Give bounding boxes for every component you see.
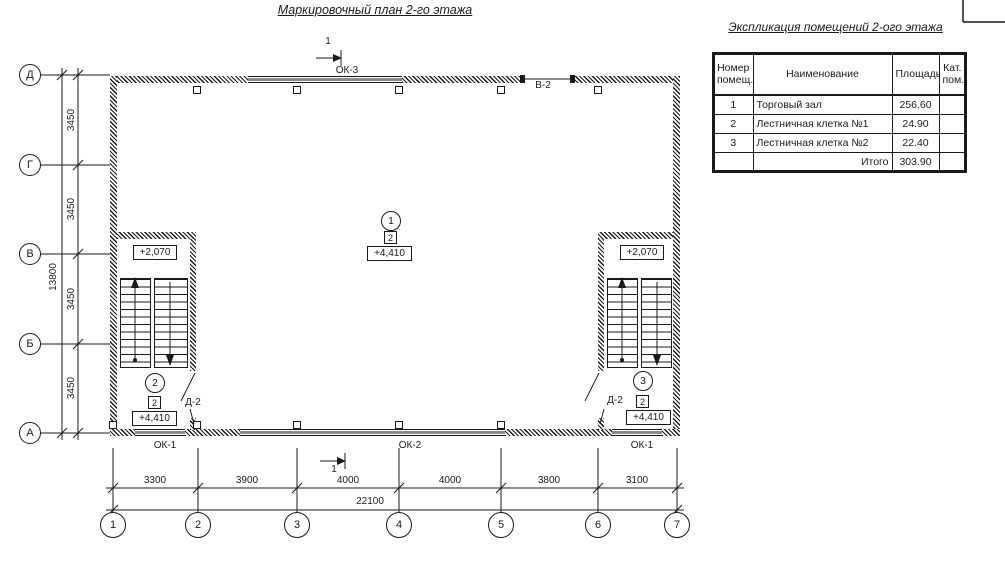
category-marker: 2 bbox=[636, 395, 649, 408]
category-marker: 2 bbox=[384, 231, 397, 244]
cell-name: Лестничная клетка №1 bbox=[753, 115, 892, 134]
cell-area: 256.60 bbox=[892, 95, 939, 115]
axis-bubble-left: В bbox=[19, 243, 41, 265]
header-category: Кат. пом. bbox=[939, 53, 966, 95]
dim-value: 3450 bbox=[66, 189, 78, 229]
plan-title: Маркировочный план 2-го этажа bbox=[225, 3, 525, 17]
axis-bubble-bottom: 6 bbox=[585, 512, 611, 538]
dim-value: 3300 bbox=[130, 475, 180, 486]
floor-plan-drawing: Маркировочный план 2-го этажа Экспликаци… bbox=[0, 0, 1005, 582]
bottom-axis-lines bbox=[113, 448, 677, 512]
section-number-bottom: 1 bbox=[328, 464, 340, 475]
dim-total-value: 22100 bbox=[345, 496, 395, 507]
cell-area: 22.40 bbox=[892, 134, 939, 153]
category-marker: 2 bbox=[148, 396, 161, 409]
axis-bubble-left: Г bbox=[19, 154, 41, 176]
axis-bubble-bottom: 7 bbox=[664, 512, 690, 538]
label-ok3: ОК-3 bbox=[320, 65, 374, 76]
dim-value: 4000 bbox=[425, 475, 475, 486]
elevation-marker: +4,410 bbox=[132, 411, 177, 426]
dim-value: 3450 bbox=[66, 100, 78, 140]
table-row: 2 Лестничная клетка №1 24.90 bbox=[713, 115, 966, 134]
elevation-marker: +4,410 bbox=[367, 246, 412, 261]
sheet-frame-corner bbox=[963, 0, 1005, 22]
bottom-dimension-lines bbox=[106, 483, 684, 515]
cell-category bbox=[939, 95, 966, 115]
label-ok2: ОК-2 bbox=[385, 440, 435, 451]
table-header-row: Номер помещ. Наименование Площадь Кат. п… bbox=[713, 53, 966, 95]
axis-bubble-left: Д bbox=[19, 64, 41, 86]
cell-total-value: 303.90 bbox=[892, 153, 939, 173]
label-ok1-left: ОК-1 bbox=[140, 440, 190, 451]
section-number-top: 1 bbox=[322, 36, 334, 47]
header-name: Наименование bbox=[753, 53, 892, 95]
axis-bubble-left: А bbox=[19, 422, 41, 444]
room-number-marker: 2 bbox=[145, 373, 165, 393]
cell-room-number: 1 bbox=[713, 95, 753, 115]
label-ok1-right: ОК-1 bbox=[617, 440, 667, 451]
label-v2: В-2 bbox=[528, 80, 558, 91]
cell-empty bbox=[939, 153, 966, 173]
cell-area: 24.90 bbox=[892, 115, 939, 134]
stair-arrows bbox=[135, 282, 657, 361]
room-number-marker: 3 bbox=[633, 371, 653, 391]
cell-category bbox=[939, 134, 966, 153]
cell-empty bbox=[713, 153, 753, 173]
table-row: 1 Торговый зал 256.60 bbox=[713, 95, 966, 115]
label-d2-left: Д-2 bbox=[180, 397, 206, 408]
axis-bubble-bottom: 1 bbox=[100, 512, 126, 538]
dim-value: 3100 bbox=[612, 475, 662, 486]
elevation-marker: +4,410 bbox=[626, 410, 671, 425]
dim-value: 3450 bbox=[66, 368, 78, 408]
cell-name: Лестничная клетка №2 bbox=[753, 134, 892, 153]
axis-bubble-left: Б bbox=[19, 333, 41, 355]
dim-value: 4000 bbox=[323, 475, 373, 486]
header-area: Площадь bbox=[892, 53, 939, 95]
table-title: Экспликация помещений 2-ого этажа bbox=[703, 20, 968, 34]
cell-room-number: 3 bbox=[713, 134, 753, 153]
header-room-number: Номер помещ. bbox=[713, 53, 753, 95]
cell-total-label: Итого bbox=[753, 153, 892, 173]
dim-value: 3450 bbox=[66, 279, 78, 319]
cell-category bbox=[939, 115, 966, 134]
cell-room-number: 2 bbox=[713, 115, 753, 134]
axis-bubble-bottom: 2 bbox=[185, 512, 211, 538]
label-d2-right: Д-2 bbox=[602, 395, 628, 406]
cell-name: Торговый зал bbox=[753, 95, 892, 115]
landing-elevation-marker: +2,070 bbox=[133, 245, 177, 260]
axis-bubble-bottom: 3 bbox=[284, 512, 310, 538]
dim-total-value: 13800 bbox=[48, 257, 60, 297]
dim-value: 3800 bbox=[524, 475, 574, 486]
axis-bubble-bottom: 4 bbox=[386, 512, 412, 538]
axis-bubble-bottom: 5 bbox=[488, 512, 514, 538]
room-number-marker: 1 bbox=[381, 211, 401, 231]
table-total-row: Итого 303.90 bbox=[713, 153, 966, 173]
room-explication-table: Номер помещ. Наименование Площадь Кат. п… bbox=[712, 52, 967, 173]
table-row: 3 Лестничная клетка №2 22.40 bbox=[713, 134, 966, 153]
landing-elevation-marker: +2,070 bbox=[620, 245, 664, 260]
dim-value: 3900 bbox=[222, 475, 272, 486]
